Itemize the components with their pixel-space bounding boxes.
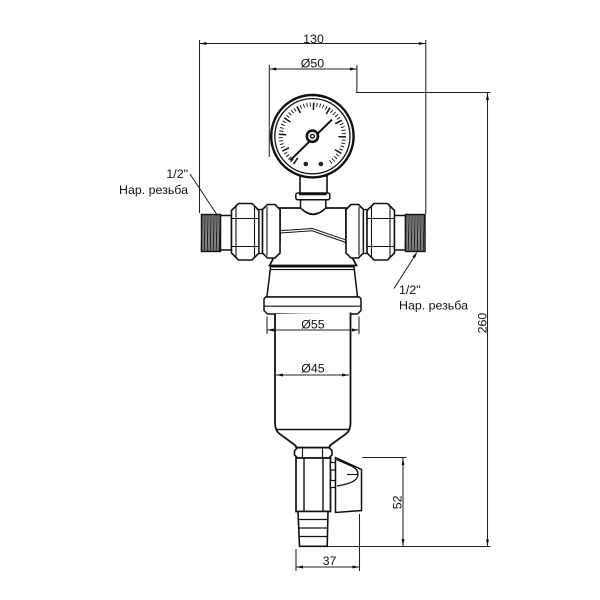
svg-text:Нар. резьба: Нар. резьба: [399, 299, 468, 313]
svg-text:Ø50: Ø50: [301, 56, 325, 70]
svg-text:Нар. резьба: Нар. резьба: [119, 183, 188, 197]
svg-text:Ø55: Ø55: [301, 317, 325, 331]
svg-text:1/2": 1/2": [399, 283, 421, 297]
svg-text:Ø45: Ø45: [301, 361, 325, 375]
svg-text:52: 52: [390, 495, 404, 509]
svg-text:260: 260: [475, 313, 489, 334]
svg-text:37: 37: [323, 554, 337, 568]
svg-text:1/2": 1/2": [166, 167, 188, 181]
svg-text:130: 130: [303, 32, 324, 46]
